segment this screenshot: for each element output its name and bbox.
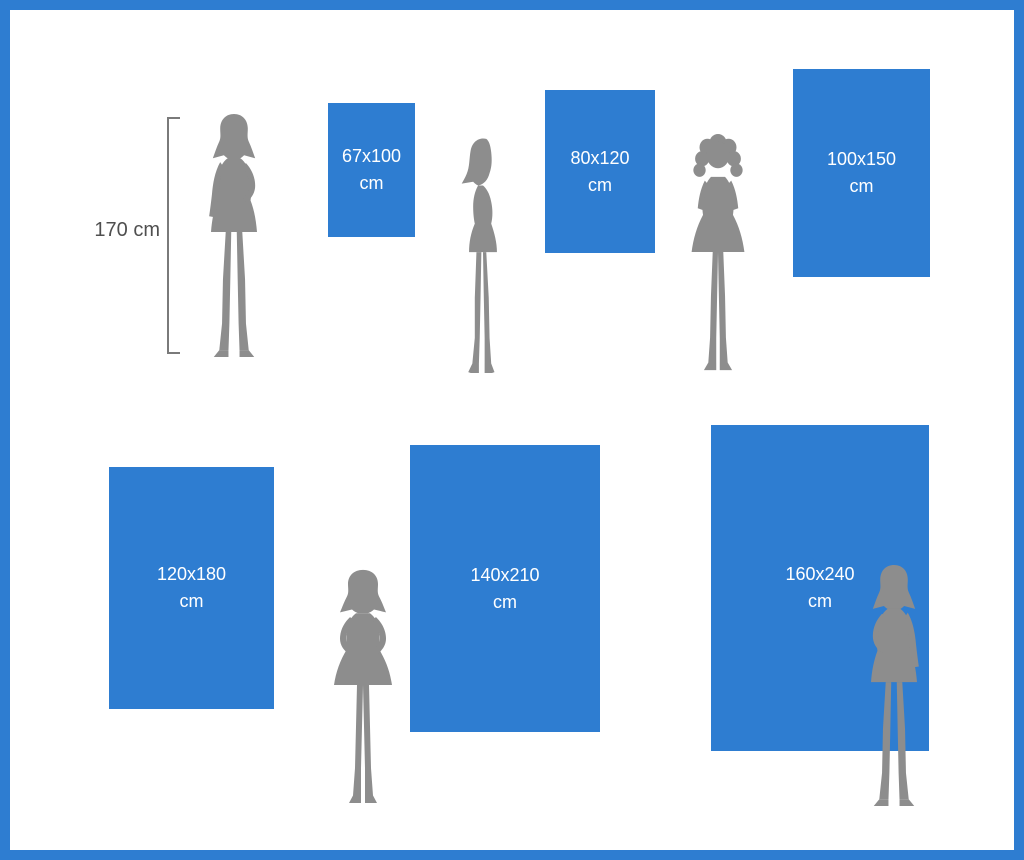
size-label-67x100: 67x100 cm (342, 143, 401, 197)
size-dimensions: 100x150 (827, 146, 896, 173)
size-unit: cm (827, 173, 896, 200)
size-label-80x120: 80x120 cm (570, 145, 629, 199)
size-unit: cm (157, 588, 226, 615)
person-height-label: 170 cm (94, 219, 160, 242)
size-label-100x150: 100x150 cm (827, 146, 896, 200)
woman-silhouette-profile (442, 136, 524, 374)
size-label-120x180: 120x180 cm (157, 561, 226, 615)
size-dimensions: 140x210 (470, 562, 539, 589)
woman-silhouette-curly-hair (674, 134, 762, 372)
size-rect-80x120: 80x120 cm (545, 90, 655, 253)
size-unit: cm (470, 589, 539, 616)
woman-silhouette-front (188, 112, 280, 358)
size-label-160x240: 160x240 cm (785, 561, 854, 615)
size-unit: cm (570, 172, 629, 199)
size-unit: cm (342, 170, 401, 197)
size-comparison-canvas: 170 cm 67x100 cm 80x120 cm 100x150 cm 12… (0, 0, 1024, 860)
size-rect-100x150: 100x150 cm (793, 69, 930, 277)
size-rect-120x180: 120x180 cm (109, 467, 274, 709)
size-unit: cm (785, 588, 854, 615)
size-dimensions: 160x240 (785, 561, 854, 588)
size-rect-67x100: 67x100 cm (328, 103, 415, 237)
woman-silhouette-front-flipped (848, 563, 940, 807)
size-dimensions: 67x100 (342, 143, 401, 170)
size-dimensions: 120x180 (157, 561, 226, 588)
woman-silhouette-hands-on-hips (313, 568, 413, 804)
height-bracket (167, 117, 180, 354)
size-dimensions: 80x120 (570, 145, 629, 172)
size-rect-140x210: 140x210 cm (410, 445, 600, 732)
size-label-140x210: 140x210 cm (470, 562, 539, 616)
